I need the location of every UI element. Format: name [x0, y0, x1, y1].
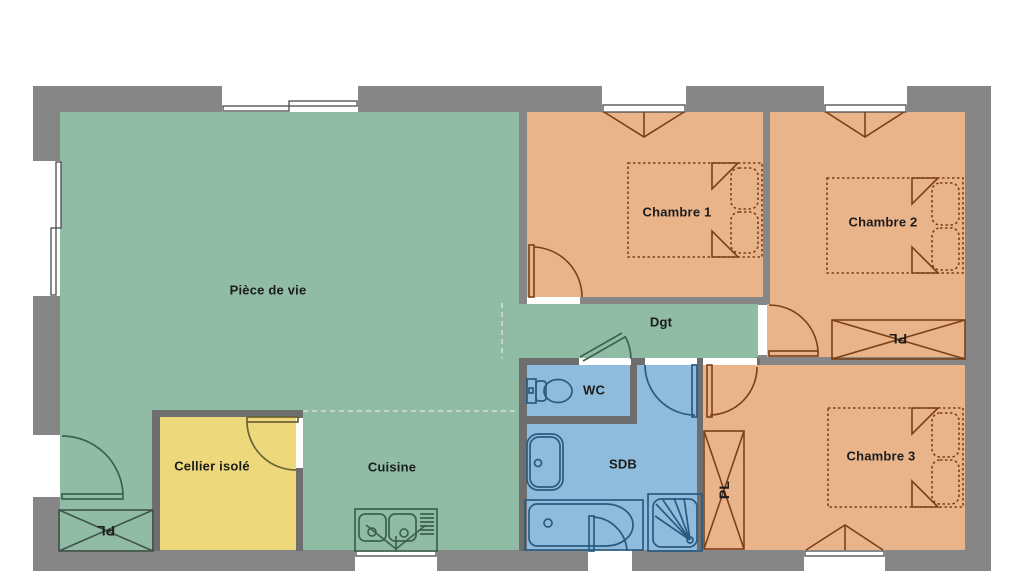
shower-icon [648, 494, 702, 551]
entrance-door-icon [62, 436, 123, 499]
room-label-kitchen: Cuisine [368, 460, 416, 475]
window-icon-living-left [51, 162, 61, 295]
bedroom2-door-icon [769, 305, 818, 356]
bedroom1-door-icon [529, 245, 582, 297]
bathroom-door-icon [645, 365, 697, 417]
closet-label-bedroom2: PL [889, 331, 907, 347]
room-label-bedroom3: Chambre 3 [847, 449, 916, 464]
room-label-bathroom: SDB [609, 457, 637, 472]
cellar-door-icon [247, 417, 298, 470]
window-icon-bedroom3-bottom [805, 525, 884, 556]
floor-plan: Pièce de vie Cuisine Cellier isolé Dgt W… [0, 0, 1024, 576]
bathroom-sink-icon [527, 434, 563, 490]
window-icon-living-top [223, 101, 357, 111]
closet-label-entry: PL [97, 523, 115, 539]
window-icon-bedroom2-top [825, 105, 906, 137]
room-label-wc: WC [583, 383, 605, 398]
toilet-icon [527, 379, 572, 403]
room-label-bedroom1: Chambre 1 [643, 205, 712, 220]
room-label-bedroom2: Chambre 2 [849, 215, 918, 230]
room-label-hallway: Dgt [650, 315, 672, 330]
wc-door-icon [580, 333, 631, 361]
window-icon-bedroom1-top [603, 105, 685, 137]
zone-dashed-lines [303, 303, 519, 411]
kitchen-sink-icon [355, 509, 437, 551]
closet-label-bedroom3: PL [716, 481, 732, 499]
symbols-layer [0, 0, 1024, 576]
room-label-cellar: Cellier isolé [174, 459, 250, 474]
room-label-living: Pièce de vie [230, 283, 307, 298]
bedroom3-door-icon [707, 365, 757, 417]
